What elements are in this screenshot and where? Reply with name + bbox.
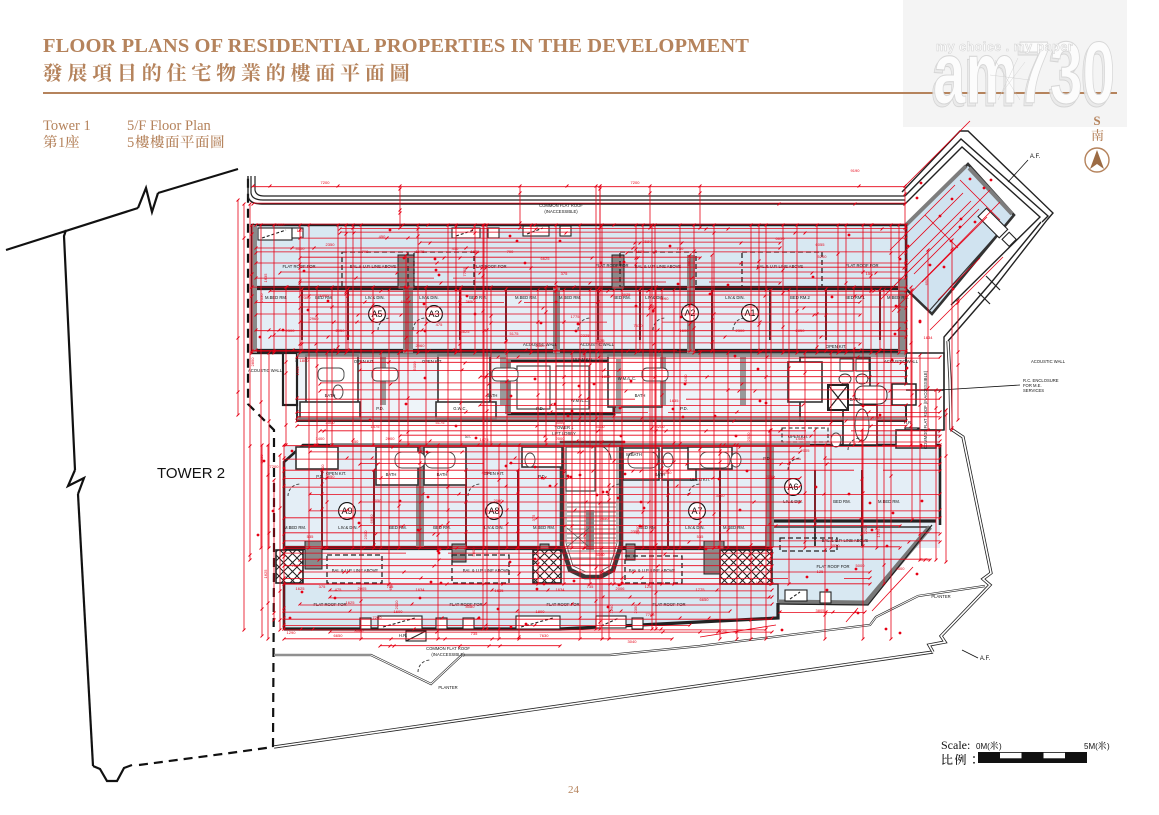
svg-text:H.R.: H.R. (399, 633, 407, 638)
svg-text:6055: 6055 (816, 242, 826, 247)
svg-text:M.BED RM.: M.BED RM. (284, 525, 306, 530)
svg-text:3175: 3175 (596, 338, 606, 343)
svg-text:9190: 9190 (683, 374, 688, 384)
svg-text:2030: 2030 (831, 543, 841, 548)
svg-text:FLOOR PLANS OF RESIDENTIAL PRO: FLOOR PLANS OF RESIDENTIAL PROPERTIES IN… (43, 35, 749, 57)
svg-text:1290: 1290 (287, 630, 297, 635)
svg-text:M.BED RM.: M.BED RM. (559, 295, 581, 300)
svg-text:9190: 9190 (660, 296, 670, 301)
svg-text:4500: 4500 (896, 566, 906, 571)
svg-text:735: 735 (587, 584, 594, 589)
svg-text:24: 24 (568, 784, 580, 796)
svg-text:4000: 4000 (596, 424, 606, 429)
svg-text:700: 700 (507, 249, 514, 254)
svg-text:LIV.& DIN.: LIV.& DIN. (365, 295, 384, 300)
svg-text:3040: 3040 (596, 552, 606, 557)
svg-text:FLAT ROOF FOR: FLAT ROOF FOR (546, 602, 579, 607)
svg-text:6625: 6625 (541, 256, 551, 261)
svg-text:P.D.: P.D. (376, 406, 384, 411)
svg-text:(INACCESSIBLE): (INACCESSIBLE) (431, 652, 465, 657)
svg-text:6650: 6650 (776, 236, 786, 241)
svg-text:730: 730 (677, 246, 684, 251)
svg-text:LIV.& DIN.: LIV.& DIN. (419, 295, 438, 300)
svg-text:7200: 7200 (863, 525, 868, 535)
svg-text:ACOUSTIC WALL: ACOUSTIC WALL (1031, 359, 1066, 364)
svg-text:1400: 1400 (320, 464, 325, 474)
svg-text:M.BED RM.: M.BED RM. (515, 295, 537, 300)
svg-text:1475: 1475 (480, 437, 490, 442)
svg-text:450: 450 (452, 246, 459, 251)
svg-text:1800: 1800 (756, 580, 766, 585)
svg-text:2960: 2960 (416, 343, 426, 348)
svg-text:ACOUSTIC WALL: ACOUSTIC WALL (248, 368, 283, 373)
svg-text:1: 1 (58, 135, 65, 151)
svg-text:7200: 7200 (373, 615, 383, 620)
svg-text:A1: A1 (744, 308, 755, 318)
svg-text:1600: 1600 (276, 222, 286, 227)
svg-text:2850: 2850 (250, 357, 255, 367)
svg-text:375: 375 (319, 584, 326, 589)
svg-text:2300: 2300 (286, 328, 296, 333)
svg-text:2850: 2850 (796, 328, 806, 333)
svg-text:7785: 7785 (462, 267, 467, 277)
svg-text:735: 735 (471, 631, 478, 636)
svg-text:2350: 2350 (633, 604, 638, 614)
svg-text:7630: 7630 (634, 323, 644, 328)
svg-text:M.BED RM.: M.BED RM. (265, 295, 287, 300)
svg-text:1634: 1634 (556, 587, 566, 592)
svg-text:2005: 2005 (358, 586, 368, 591)
svg-text:0M(: 0M( (976, 742, 990, 751)
svg-text:1775: 1775 (876, 528, 881, 538)
svg-text:2050: 2050 (663, 470, 673, 475)
svg-text:PLANTER: PLANTER (438, 685, 457, 690)
svg-text:1635: 1635 (263, 273, 268, 283)
svg-text:COMMON FLAT ROOF: COMMON FLAT ROOF (426, 646, 470, 651)
svg-text:1600: 1600 (295, 366, 300, 376)
svg-text:FLAT ROOF FOR: FLAT ROOF FOR (313, 602, 346, 607)
svg-text:BED RM.: BED RM. (833, 499, 850, 504)
svg-text:BAL.& U.P. LINE ABOVE: BAL.& U.P. LINE ABOVE (350, 264, 397, 269)
svg-text:8080: 8080 (466, 604, 476, 609)
svg-text:125: 125 (817, 569, 824, 574)
svg-text:3805: 3805 (816, 608, 826, 613)
svg-text:2000: 2000 (494, 498, 504, 503)
svg-text:SERVICES: SERVICES (1023, 388, 1044, 393)
svg-text:535: 535 (307, 534, 314, 539)
svg-text:2006: 2006 (616, 586, 626, 591)
svg-text:2325: 2325 (581, 333, 591, 338)
svg-text:4000: 4000 (296, 246, 306, 251)
svg-text:5175: 5175 (510, 331, 520, 336)
svg-text:Tower 1: Tower 1 (43, 118, 91, 134)
svg-text:4775: 4775 (718, 628, 728, 633)
svg-text:A.F.: A.F. (980, 656, 991, 662)
svg-text:OPEN KIT.: OPEN KIT. (354, 359, 374, 364)
svg-text:7200: 7200 (631, 180, 641, 185)
svg-text:1800: 1800 (602, 374, 612, 379)
svg-text:150: 150 (297, 228, 304, 233)
svg-text:M.BED RM.: M.BED RM. (878, 499, 900, 504)
svg-text:FLAT ROOF FOR: FLAT ROOF FOR (652, 602, 685, 607)
svg-text:3000: 3000 (716, 493, 726, 498)
svg-text:FLAT ROOF FOR: FLAT ROOF FOR (473, 264, 506, 269)
svg-text:G.W.C.: G.W.C. (453, 406, 467, 411)
svg-text:6625: 6625 (461, 329, 471, 334)
svg-text:3000: 3000 (326, 420, 336, 425)
svg-text:P.D.: P.D. (680, 406, 688, 411)
svg-text:2300: 2300 (736, 328, 746, 333)
svg-text:7785: 7785 (646, 612, 656, 617)
svg-text:TOWER 2: TOWER 2 (157, 465, 225, 482)
svg-text:LIV.& DIN.: LIV.& DIN. (725, 295, 744, 300)
svg-text:1400: 1400 (796, 436, 806, 441)
svg-text:5200: 5200 (818, 254, 828, 259)
svg-text:1625: 1625 (296, 586, 306, 591)
svg-text:7630: 7630 (540, 633, 550, 638)
svg-text:1800: 1800 (300, 358, 310, 363)
svg-text:2300: 2300 (302, 295, 312, 300)
svg-text:375: 375 (531, 514, 536, 521)
svg-text:3650: 3650 (581, 348, 586, 358)
svg-text:LIV.& DIN.: LIV.& DIN. (338, 525, 357, 530)
svg-text:2850: 2850 (600, 516, 610, 521)
svg-text:2300: 2300 (363, 530, 368, 540)
svg-text:2350: 2350 (326, 242, 336, 247)
svg-text:1635: 1635 (495, 588, 505, 593)
svg-text:2030: 2030 (746, 432, 751, 442)
svg-text:1800: 1800 (536, 609, 546, 614)
svg-text:BAL.& U.P. LINE ABOVE: BAL.& U.P. LINE ABOVE (757, 264, 804, 269)
svg-text:7785: 7785 (873, 415, 883, 420)
svg-text:7200: 7200 (270, 464, 280, 469)
svg-text:1625: 1625 (346, 600, 356, 605)
svg-text:1775: 1775 (696, 587, 706, 592)
svg-text:M.BATH: M.BATH (626, 452, 642, 457)
svg-text:6650: 6650 (700, 597, 710, 602)
svg-text:535: 535 (697, 534, 704, 539)
svg-text:LIV.& DIN.: LIV.& DIN. (783, 499, 802, 504)
svg-text:Scale:: Scale: (941, 738, 970, 752)
svg-text:BATH: BATH (386, 472, 397, 477)
svg-text:1634: 1634 (416, 587, 426, 592)
svg-text:3650: 3650 (466, 299, 476, 304)
svg-text:375: 375 (561, 271, 568, 276)
svg-text:1600: 1600 (686, 259, 691, 269)
svg-text:7200: 7200 (321, 180, 331, 185)
svg-text:BATH: BATH (325, 393, 336, 398)
svg-text:650: 650 (401, 299, 408, 304)
svg-text:2050: 2050 (373, 498, 383, 503)
svg-text:2000: 2000 (386, 436, 396, 441)
svg-text:COMMON FLAT ROOF (INACCESSIBLE: COMMON FLAT ROOF (INACCESSIBLE) (923, 370, 928, 449)
svg-text:2030: 2030 (259, 454, 264, 464)
svg-text:1775: 1775 (571, 314, 581, 319)
svg-text:700: 700 (362, 249, 369, 254)
svg-text:5000: 5000 (556, 420, 566, 425)
svg-text:2030: 2030 (259, 293, 264, 303)
svg-text:2580: 2580 (643, 239, 653, 244)
svg-text:5000: 5000 (412, 361, 417, 371)
svg-text:5: 5 (127, 135, 134, 151)
svg-text:(INACCESSIBLE): (INACCESSIBLE) (544, 209, 578, 214)
svg-text:1600: 1600 (680, 328, 690, 333)
svg-text:3040: 3040 (628, 639, 638, 644)
svg-text:475: 475 (335, 587, 342, 592)
svg-text:9190: 9190 (851, 168, 861, 173)
svg-text:1625: 1625 (263, 569, 268, 579)
svg-text:6650: 6650 (334, 633, 344, 638)
svg-text:1475: 1475 (650, 304, 655, 314)
svg-text:650: 650 (388, 583, 393, 590)
svg-text:125: 125 (645, 584, 652, 589)
svg-text:2000: 2000 (556, 436, 566, 441)
svg-text:6650: 6650 (369, 514, 374, 524)
svg-text:2050: 2050 (336, 328, 346, 333)
svg-text:): ) (1107, 742, 1110, 751)
svg-text:1635: 1635 (471, 249, 481, 254)
svg-text:5000: 5000 (856, 563, 866, 568)
svg-text:3925: 3925 (622, 292, 632, 297)
svg-text:OPEN KIT.: OPEN KIT. (422, 359, 442, 364)
svg-text:1475: 1475 (371, 424, 381, 429)
svg-text:): ) (999, 742, 1002, 751)
svg-text:2000: 2000 (394, 600, 399, 610)
svg-text:1290: 1290 (609, 604, 614, 614)
svg-text:2050: 2050 (326, 474, 336, 479)
svg-text:5000: 5000 (471, 547, 476, 557)
svg-text:5M(: 5M( (1084, 742, 1098, 751)
svg-text:BATH: BATH (635, 393, 646, 398)
svg-text:BAL.& U.P. LINE ABOVE: BAL.& U.P. LINE ABOVE (635, 264, 682, 269)
svg-text:5200: 5200 (656, 424, 666, 429)
svg-text:BED RM.2: BED RM.2 (790, 295, 810, 300)
svg-text:2960: 2960 (310, 316, 320, 321)
svg-text:S: S (1093, 113, 1100, 128)
svg-text:450: 450 (379, 234, 386, 239)
svg-text:3175: 3175 (920, 557, 930, 562)
svg-text:2860: 2860 (536, 343, 546, 348)
svg-text:P.D.: P.D. (536, 406, 544, 411)
svg-text:4500: 4500 (482, 470, 492, 475)
svg-text:my choice . my paper: my choice . my paper (936, 40, 1073, 54)
svg-text:ST.: ST. (465, 434, 471, 439)
svg-text:5175: 5175 (436, 420, 446, 425)
svg-text:1635: 1635 (416, 249, 426, 254)
svg-text:650: 650 (924, 278, 929, 285)
svg-text:2050: 2050 (766, 474, 776, 479)
svg-text:475: 475 (436, 322, 443, 327)
svg-text:OPEN KIT.: OPEN KIT. (826, 344, 846, 349)
svg-text:150: 150 (866, 271, 873, 276)
svg-text:COMMON FLAT ROOF: COMMON FLAT ROOF (539, 203, 583, 208)
svg-text:1635: 1635 (670, 398, 680, 403)
svg-text:3000: 3000 (635, 525, 640, 535)
svg-text:am730: am730 (933, 23, 1115, 122)
svg-text:A.F.: A.F. (1030, 154, 1041, 160)
svg-text:PLANTER: PLANTER (931, 594, 950, 599)
svg-text:730: 730 (292, 563, 299, 568)
svg-text:2005: 2005 (801, 448, 811, 453)
svg-text:8080: 8080 (355, 628, 365, 633)
svg-text:5/F Floor Plan: 5/F Floor Plan (127, 118, 212, 134)
svg-text:1400: 1400 (320, 293, 330, 298)
svg-text:1635: 1635 (636, 249, 646, 254)
svg-text:1634: 1634 (924, 335, 934, 340)
svg-text:1400: 1400 (316, 436, 326, 441)
svg-text:650: 650 (352, 439, 359, 444)
